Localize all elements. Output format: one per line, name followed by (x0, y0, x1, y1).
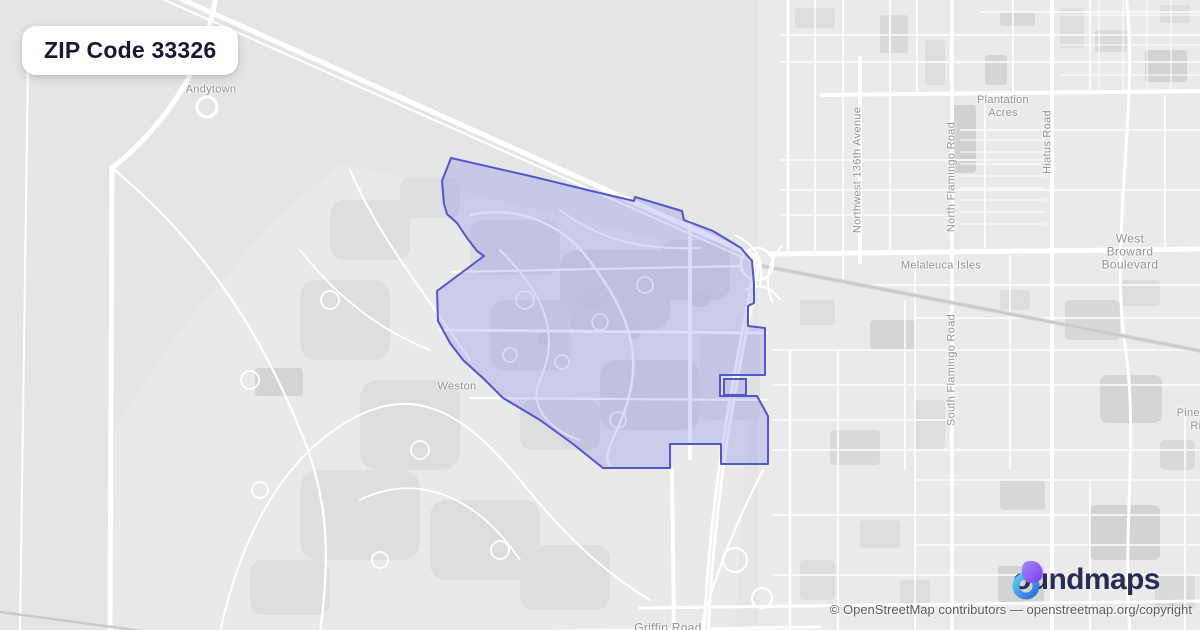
zip-boundary-enclave (724, 379, 746, 395)
zip-code-badge-label: ZIP Code 33326 (44, 37, 216, 63)
boundmaps-logo[interactable]: oundmaps (1012, 560, 1160, 600)
boundmaps-pin-icon (1012, 560, 1052, 602)
map-stage[interactable]: Andytown Plantation Acres Melaleuca Isle… (0, 0, 1200, 630)
map-canvas[interactable] (0, 0, 1200, 630)
zip-code-badge: ZIP Code 33326 (22, 26, 238, 75)
osm-attribution-link[interactable]: © OpenStreetMap contributors — openstree… (830, 602, 1192, 617)
